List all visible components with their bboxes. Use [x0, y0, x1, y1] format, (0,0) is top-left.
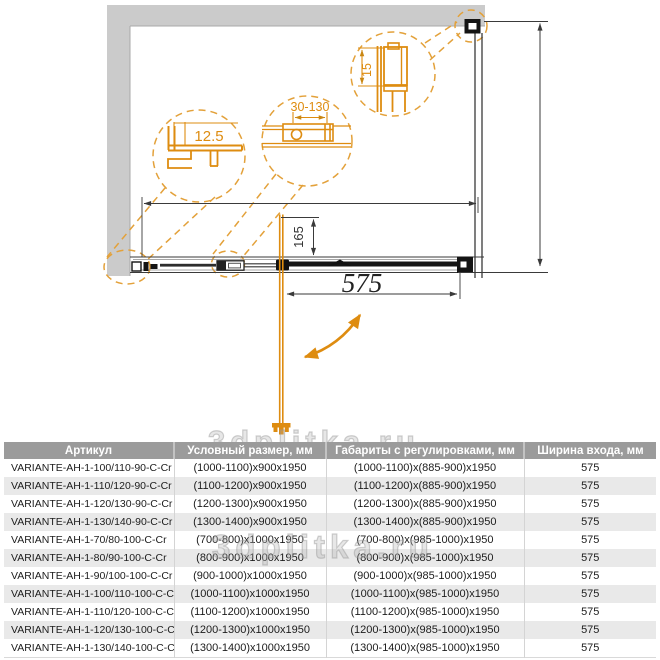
cell-nominal: (1200-1300)x900x1950 [174, 495, 326, 513]
open-door-swing [272, 215, 360, 435]
roller-carriage [217, 261, 244, 270]
cell-article: VARIANTE-AH-1-110/120-90-C-Cr [4, 477, 174, 495]
cell-article: VARIANTE-AH-1-70/80-100-C-Cr [4, 531, 174, 549]
cell-entry: 575 [524, 513, 656, 531]
cell-nominal: (1100-1200)x900x1950 [174, 477, 326, 495]
table-row: VARIANTE-AH-1-110/120-90-C-Cr (1100-1200… [4, 477, 656, 495]
side-glass-panel [475, 33, 482, 278]
cell-entry: 575 [524, 603, 656, 621]
table-row: VARIANTE-AH-1-80/90-100-C-Cr (800-900)x1… [4, 549, 656, 567]
cell-entry: 575 [524, 585, 656, 603]
spec-table: Артикул Условный размер, мм Габариты с р… [4, 442, 656, 658]
cell-entry: 575 [524, 477, 656, 495]
col-header-nominal-size: Условный размер, мм [174, 442, 326, 459]
col-header-article: Артикул [4, 442, 174, 459]
table-row: VARIANTE-AH-1-130/140-100-C-Cr (1300-140… [4, 639, 656, 658]
cell-article: VARIANTE-AH-1-80/90-100-C-Cr [4, 549, 174, 567]
table-row: VARIANTE-AH-1-130/140-90-C-Cr (1300-1400… [4, 513, 656, 531]
sliding-rail [130, 257, 484, 274]
corner-bracket [465, 19, 481, 34]
cell-nominal: (1300-1400)x1000x1950 [174, 639, 326, 658]
cell-article: VARIANTE-AH-1-90/100-100-C-Cr [4, 567, 174, 585]
table-row: VARIANTE-AH-1-110/120-100-C-Cr (1100-120… [4, 603, 656, 621]
cell-article: VARIANTE-AH-1-110/120-100-C-Cr [4, 603, 174, 621]
cell-adjusted: (1000-1100)x(885-900)x1950 [326, 459, 524, 477]
cell-article: VARIANTE-AH-1-130/140-100-C-Cr [4, 639, 174, 658]
table-row: VARIANTE-AH-1-70/80-100-C-Cr (700-800)x1… [4, 531, 656, 549]
table-row: VARIANTE-AH-1-120/130-90-C-Cr (1200-1300… [4, 495, 656, 513]
shower-door-plan-diagram: 12.5 30-130 15 [0, 0, 660, 440]
cell-adjusted: (1300-1400)x(985-1000)x1950 [326, 639, 524, 658]
detail-wall-profile: 12.5 [168, 122, 242, 168]
cell-adjusted: (1200-1300)x(985-1000)x1950 [326, 621, 524, 639]
cell-adjusted: (900-1000)x(985-1000)x1950 [326, 567, 524, 585]
table-row: VARIANTE-AH-1-120/130-100-C-Cr (1200-130… [4, 621, 656, 639]
cell-article: VARIANTE-AH-1-130/140-90-C-Cr [4, 513, 174, 531]
cell-adjusted: (1100-1200)x(885-900)x1950 [326, 477, 524, 495]
detail-top-profile: 15 [358, 43, 407, 112]
table-row: VARIANTE-AH-1-100/110-100-C-Cr (1000-110… [4, 585, 656, 603]
wall-profile-end [132, 262, 141, 271]
cell-nominal: (1100-1200)x1000x1950 [174, 603, 326, 621]
cell-nominal: (1000-1100)x900x1950 [174, 459, 326, 477]
product-spec-sheet: 12.5 30-130 15 [0, 0, 660, 660]
table-row: VARIANTE-AH-1-90/100-100-C-Cr (900-1000)… [4, 567, 656, 585]
cell-entry: 575 [524, 621, 656, 639]
detail-label-30-130: 30-130 [291, 100, 330, 114]
cell-article: VARIANTE-AH-1-120/130-90-C-Cr [4, 495, 174, 513]
cell-adjusted: (1000-1100)x(985-1000)x1950 [326, 585, 524, 603]
cell-entry: 575 [524, 495, 656, 513]
cell-adjusted: (1300-1400)x(885-900)x1950 [326, 513, 524, 531]
spec-table-header-row: Артикул Условный размер, мм Габариты с р… [4, 442, 656, 459]
cell-adjusted: (800-900)x(985-1000)x1950 [326, 549, 524, 567]
cell-entry: 575 [524, 531, 656, 549]
swing-arc-arrow [305, 315, 360, 357]
cell-entry: 575 [524, 639, 656, 658]
cell-entry: 575 [524, 459, 656, 477]
cell-nominal: (800-900)x1000x1950 [174, 549, 326, 567]
table-row: VARIANTE-AH-1-100/110-90-C-Cr (1000-1100… [4, 459, 656, 477]
cell-adjusted: (1100-1200)x(985-1000)x1950 [326, 603, 524, 621]
cell-article: VARIANTE-AH-1-120/130-100-C-Cr [4, 621, 174, 639]
detail-label-15: 15 [360, 63, 374, 77]
cell-article: VARIANTE-AH-1-100/110-90-C-Cr [4, 459, 174, 477]
cell-nominal: (1300-1400)x900x1950 [174, 513, 326, 531]
cell-nominal: (700-800)x1000x1950 [174, 531, 326, 549]
sliding-door-panel [289, 262, 460, 267]
cell-adjusted: (700-800)x(985-1000)x1950 [326, 531, 524, 549]
col-header-entry-width: Ширина входа, мм [524, 442, 656, 459]
cell-article: VARIANTE-AH-1-100/110-100-C-Cr [4, 585, 174, 603]
cell-entry: 575 [524, 567, 656, 585]
dim-label-575: 575 [342, 268, 383, 298]
col-header-adjusted-size: Габариты с регулировками, мм [326, 442, 524, 459]
door-handle [272, 423, 291, 435]
cell-entry: 575 [524, 549, 656, 567]
cell-nominal: (1000-1100)x1000x1950 [174, 585, 326, 603]
cell-nominal: (1200-1300)x1000x1950 [174, 621, 326, 639]
detail-label-12-5: 12.5 [194, 128, 223, 145]
cell-adjusted: (1200-1300)x(885-900)x1950 [326, 495, 524, 513]
dim-label-165: 165 [291, 226, 306, 248]
cell-nominal: (900-1000)x1000x1950 [174, 567, 326, 585]
